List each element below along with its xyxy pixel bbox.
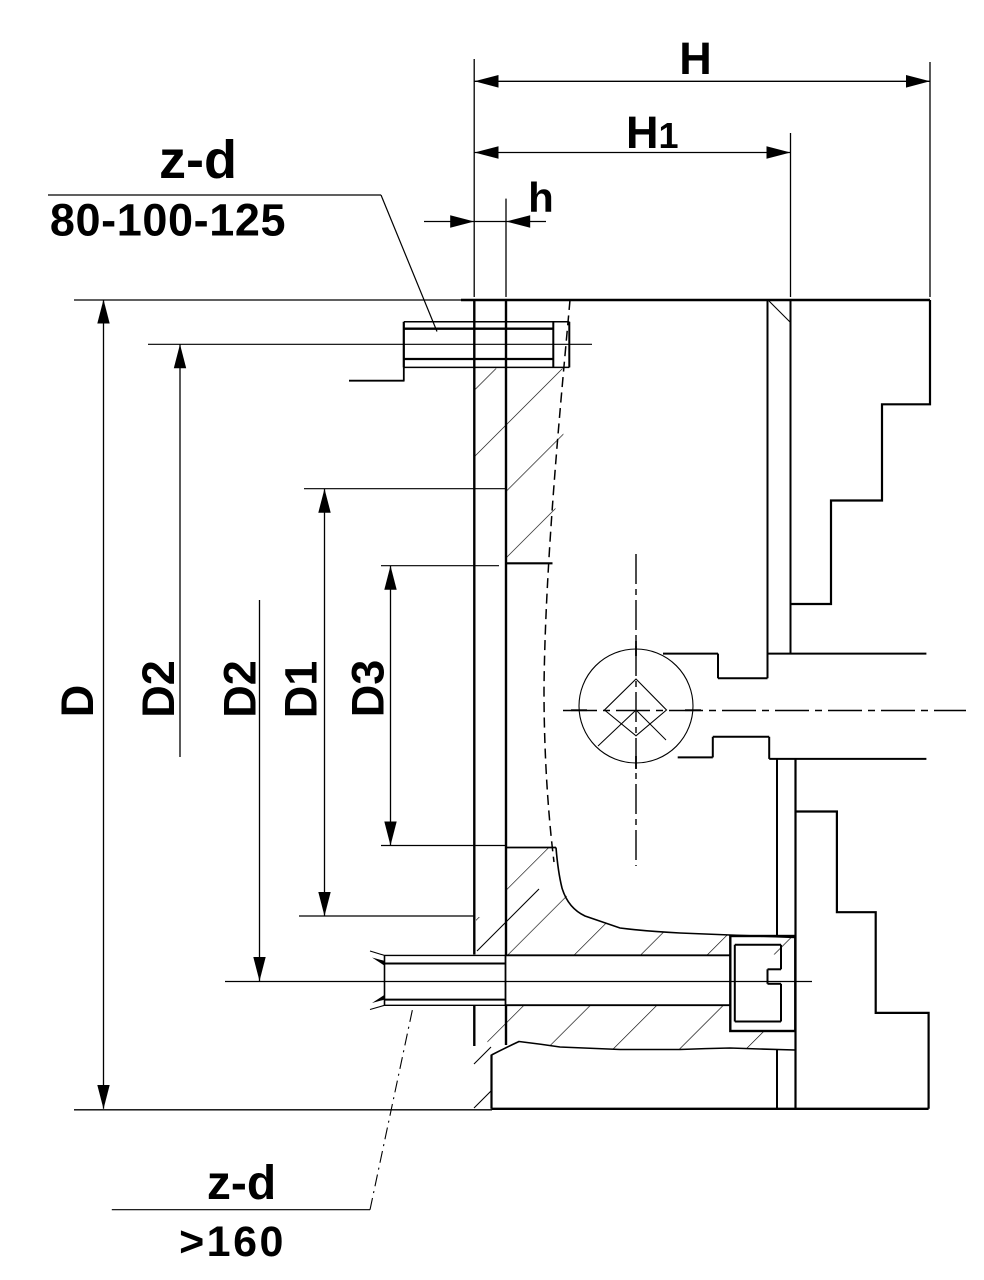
svg-text:>160: >160	[179, 1218, 286, 1266]
svg-text:z-d: z-d	[159, 130, 237, 190]
svg-text:80-100-125: 80-100-125	[50, 195, 286, 246]
svg-text:z-d: z-d	[207, 1157, 276, 1210]
svg-text:D2: D2	[215, 660, 266, 718]
svg-text:D2: D2	[133, 660, 184, 718]
svg-text:H: H	[679, 33, 712, 84]
svg-text:D3: D3	[343, 660, 394, 718]
svg-text:D: D	[52, 685, 103, 718]
svg-text:h: h	[528, 174, 554, 221]
svg-text:D1: D1	[275, 661, 326, 719]
svg-text:H1: H1	[626, 107, 679, 158]
